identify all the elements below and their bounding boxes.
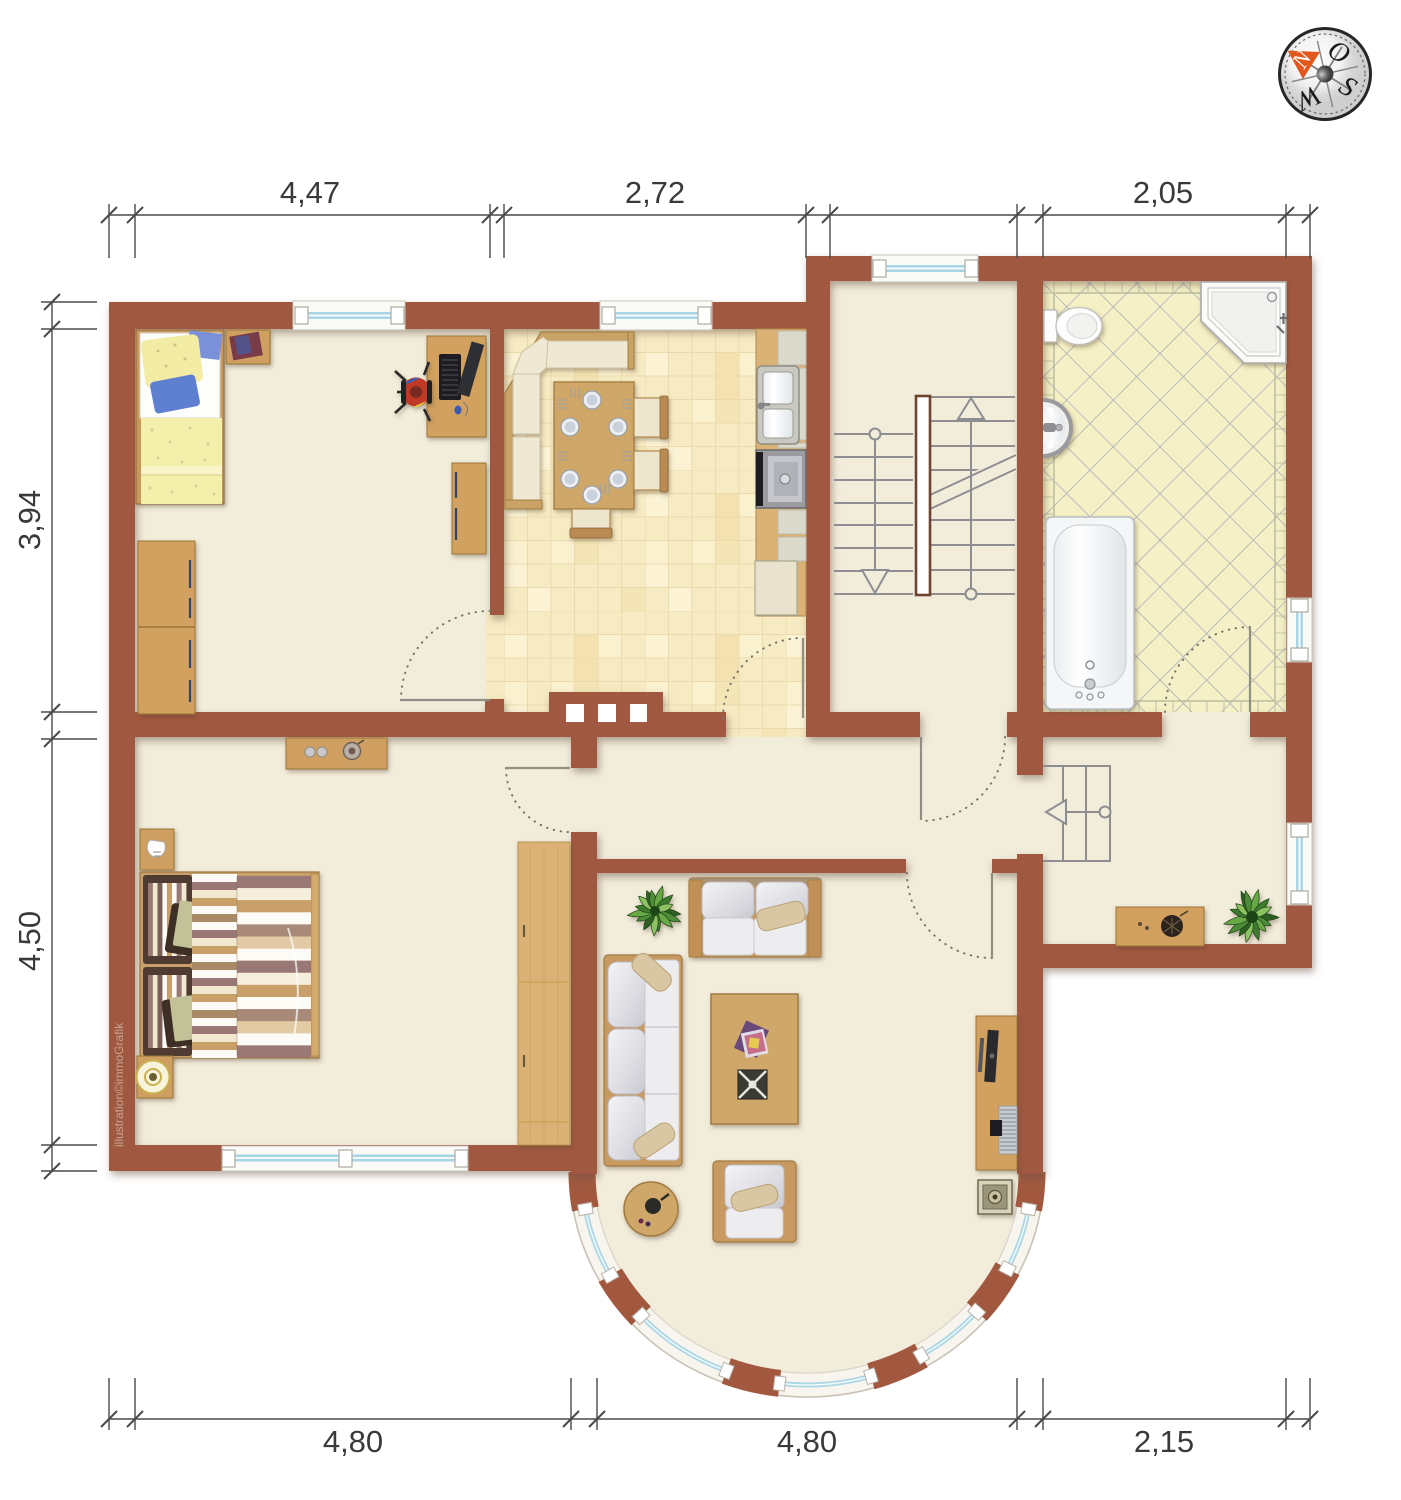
svg-text:3,94: 3,94 [12, 490, 47, 550]
svg-text:2,72: 2,72 [625, 175, 685, 210]
svg-text:4,50: 4,50 [12, 911, 47, 971]
svg-text:4,47: 4,47 [280, 175, 340, 210]
svg-text:4,80: 4,80 [777, 1424, 837, 1459]
svg-text:4,80: 4,80 [323, 1424, 383, 1459]
svg-text:2,15: 2,15 [1134, 1424, 1194, 1459]
svg-text:illustration©immoGrafik: illustration©immoGrafik [112, 1022, 126, 1147]
svg-text:2,05: 2,05 [1133, 175, 1193, 210]
